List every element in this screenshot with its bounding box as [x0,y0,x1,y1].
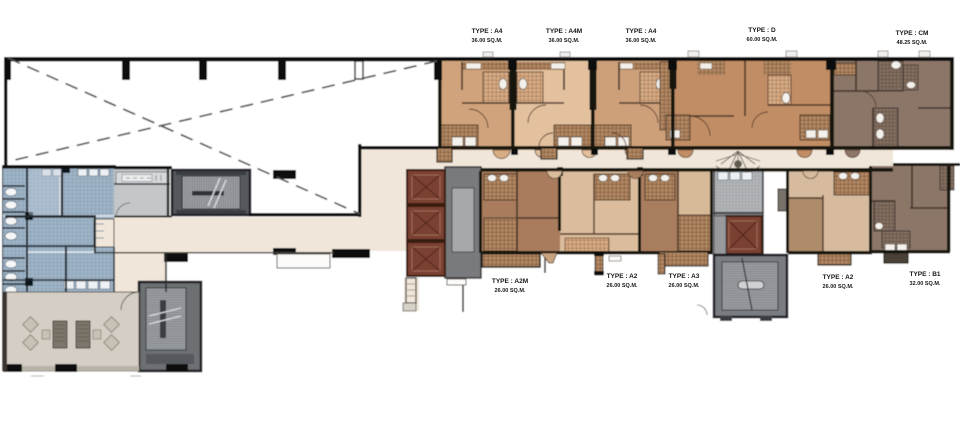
svg-text:36.00 SQ.M.: 36.00 SQ.M. [472,38,503,44]
svg-text:TYPE : D: TYPE : D [748,27,776,34]
svg-text:48.25 SQ.M.: 48.25 SQ.M. [897,40,928,46]
svg-text:36.00 SQ.M.: 36.00 SQ.M. [626,38,657,44]
svg-text:32.00 SQ.M.: 32.00 SQ.M. [910,281,941,287]
svg-text:TYPE : A3: TYPE : A3 [669,273,700,280]
svg-text:TYPE : A2: TYPE : A2 [823,274,854,281]
svg-text:TYPE : A2M: TYPE : A2M [492,278,528,285]
svg-text:36.00 SQ.M.: 36.00 SQ.M. [549,38,580,44]
svg-text:TYPE : A2: TYPE : A2 [607,273,638,280]
svg-text:26.00 SQ.M.: 26.00 SQ.M. [823,284,854,290]
svg-text:TYPE : B1: TYPE : B1 [909,271,940,278]
svg-text:TYPE : CM: TYPE : CM [896,30,929,37]
svg-text:26.00 SQ.M.: 26.00 SQ.M. [669,283,700,289]
svg-text:TYPE : A4: TYPE : A4 [626,28,657,35]
svg-text:TYPE : A4: TYPE : A4 [472,28,503,35]
svg-text:TYPE : A4M: TYPE : A4M [546,28,582,35]
svg-text:26.00 SQ.M.: 26.00 SQ.M. [495,288,526,294]
svg-text:26.00 SQ.M.: 26.00 SQ.M. [607,283,638,289]
svg-text:60.00 SQ.M.: 60.00 SQ.M. [747,37,778,43]
